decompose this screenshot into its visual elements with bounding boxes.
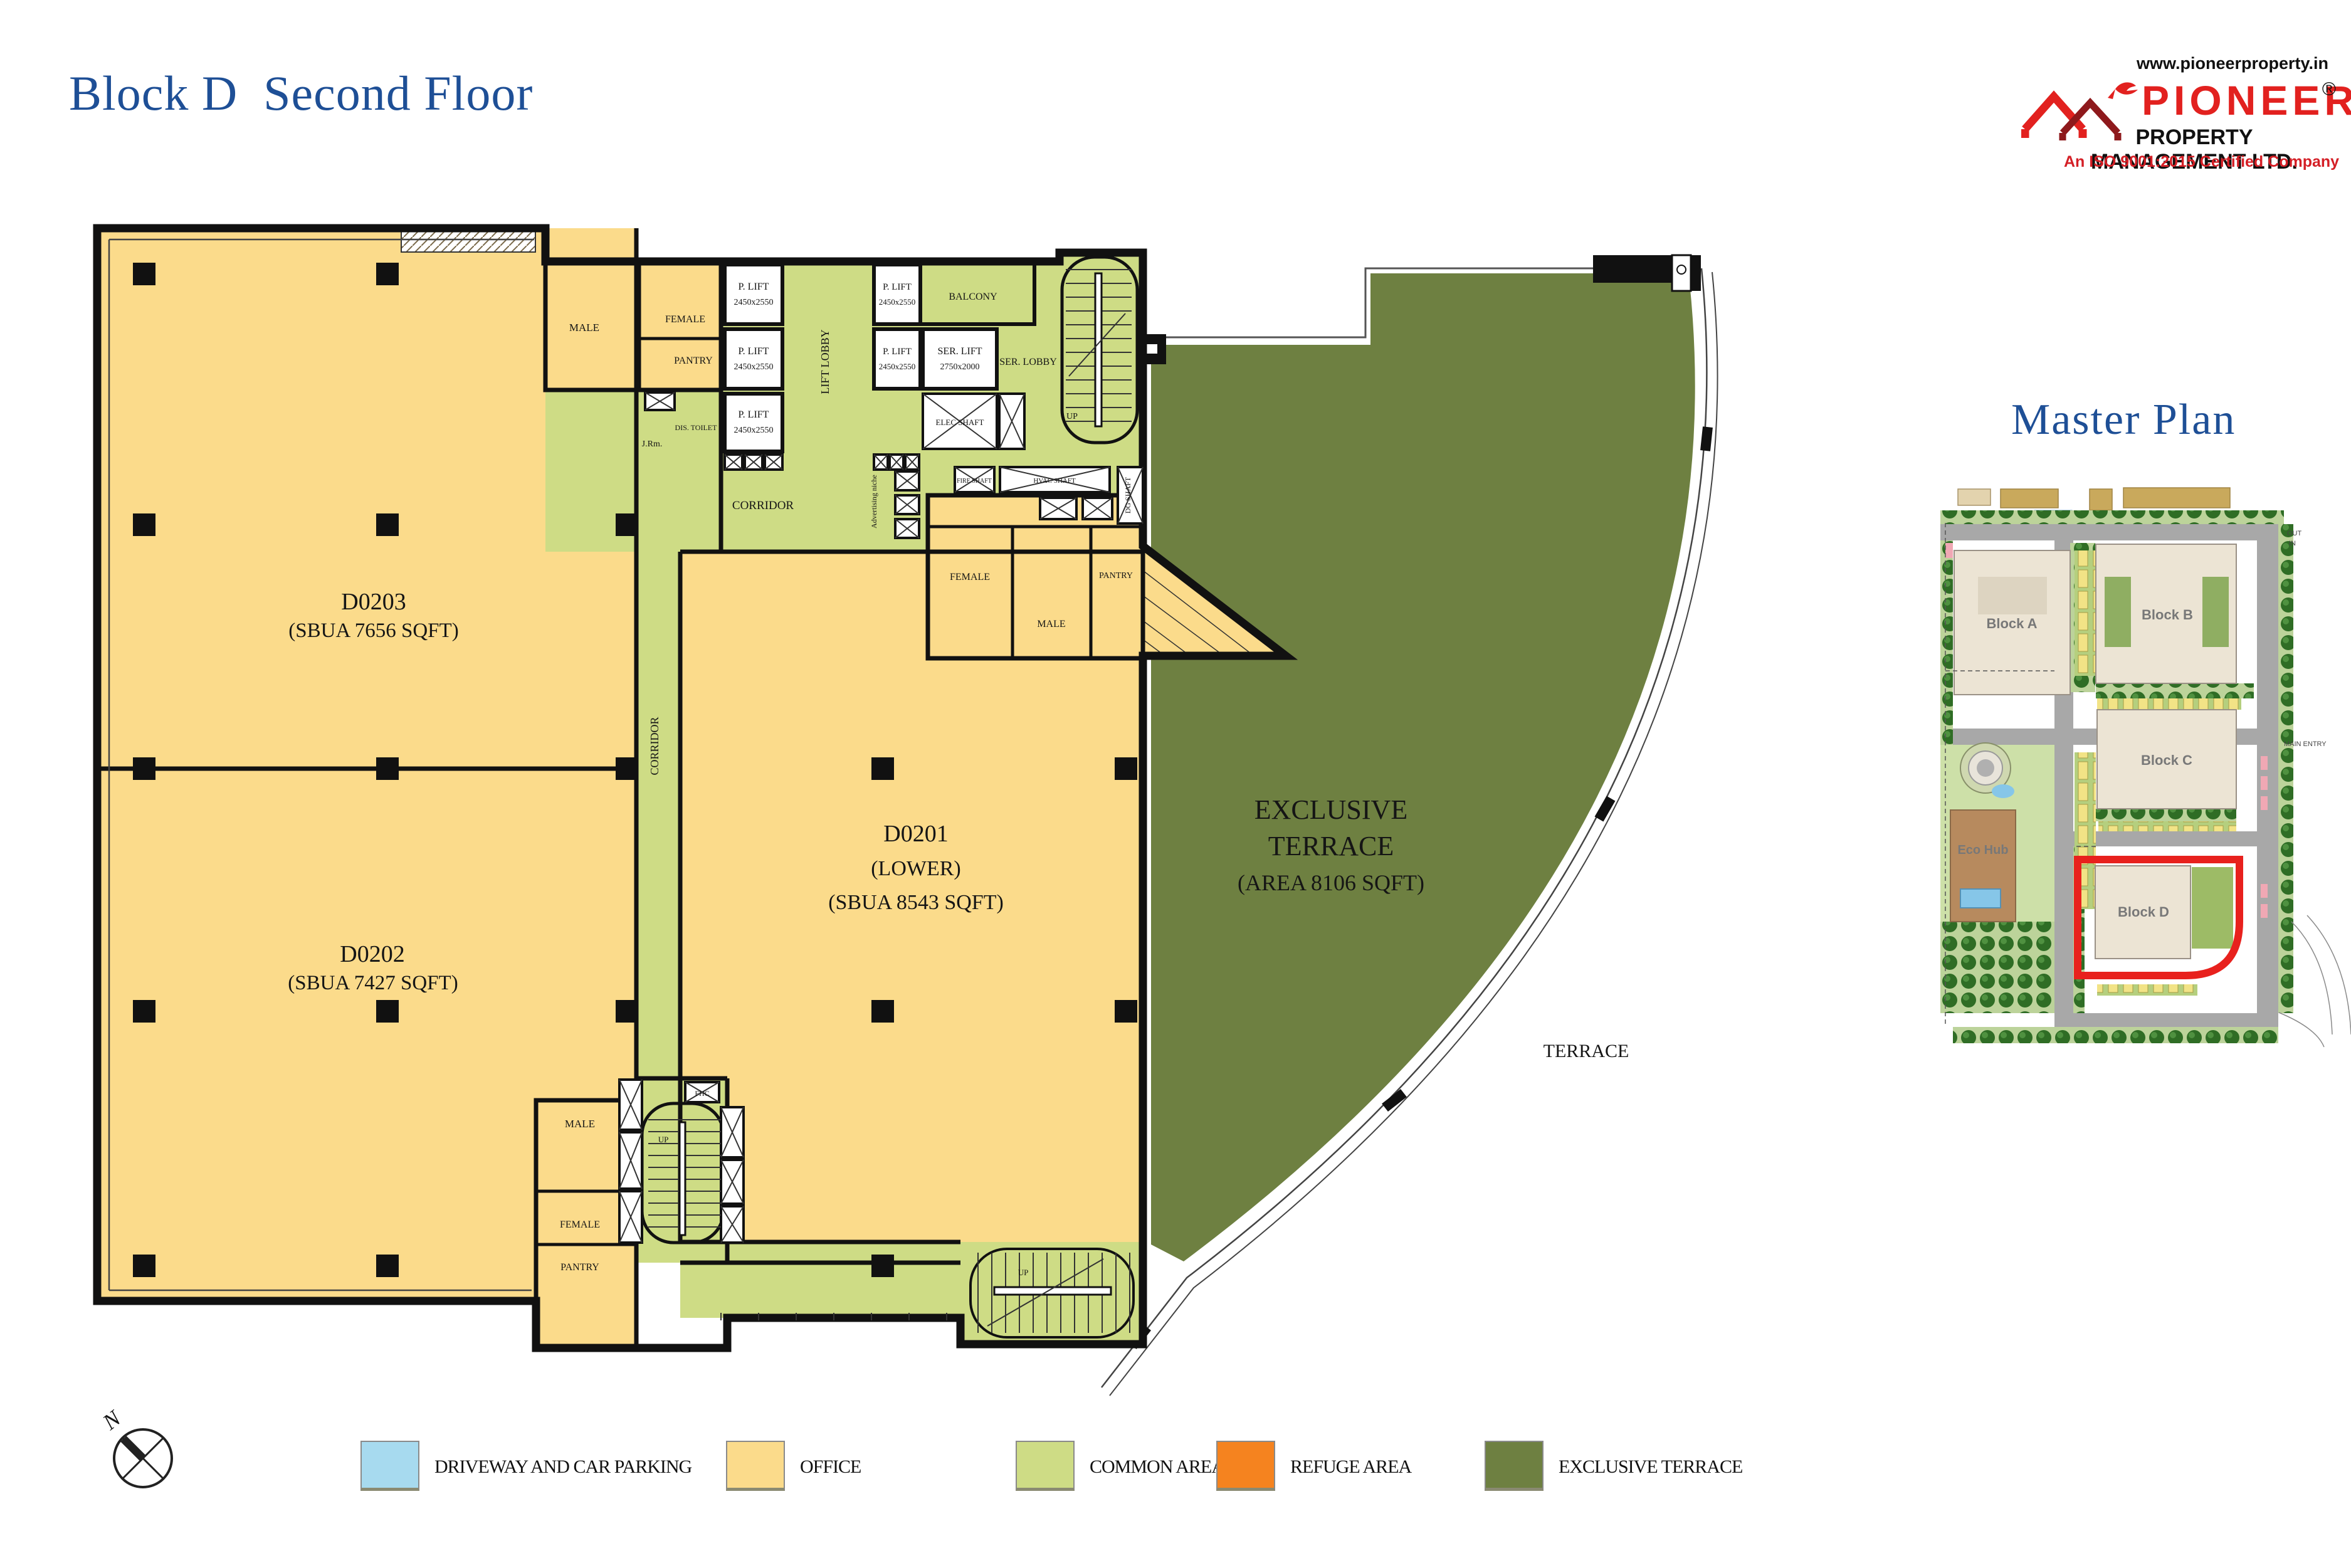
male-top-label: MALE — [569, 322, 599, 334]
compass: N — [98, 1405, 172, 1487]
p-lift-5 — [874, 329, 920, 389]
registered-mark: ® — [2322, 79, 2336, 100]
refuge-label: REFUGE AREA — [1290, 1441, 1411, 1493]
driveway-label: DRIVEWAY AND CAR PARKING — [434, 1441, 692, 1493]
mp-eco-hub-label: Eco Hub — [1957, 843, 2008, 857]
dis-toilet-label: DIS. TOILET — [675, 423, 718, 432]
corridor-h-label: CORRIDOR — [732, 499, 794, 512]
mp-main-entry-label: MAIN ENTRY — [2284, 740, 2327, 748]
p-lift-2-size: 2450x2550 — [734, 362, 774, 372]
lift-lobby-label: LIFT LOBBY — [819, 329, 831, 394]
p-lift-3-size: 2450x2550 — [734, 426, 774, 435]
unit-d0201-area: (SBUA 8543 SQFT) — [828, 891, 1004, 914]
unit-d0201-id: D0201 — [883, 821, 948, 847]
terrace-line2: TERRACE — [1268, 831, 1394, 861]
p-lift-3-label: P. LIFT — [739, 409, 769, 420]
terrace-swatch — [1485, 1441, 1544, 1491]
hvac-shaft-label: HVAC SHAFT — [1033, 477, 1076, 485]
p-lift-5-size: 2450x2550 — [879, 362, 916, 371]
ser-lift-size: 2750x2000 — [940, 362, 980, 372]
website-url: www.pioneerproperty.in — [2137, 54, 2328, 73]
upper-stair-newel — [1095, 273, 1102, 426]
mp-block-a-label: Block A — [1986, 616, 2037, 631]
mp-block-b-label: Block B — [2142, 607, 2193, 623]
ser-lift — [923, 329, 997, 389]
p-lift-3 — [725, 394, 782, 451]
unit-d0202-area: (SBUA 7427 SQFT) — [288, 972, 458, 994]
corridor-strip-bottom — [680, 1242, 960, 1318]
terrace-label: EXCLUSIVE TERRACE — [1559, 1441, 1742, 1493]
building-fills — [97, 228, 1286, 1348]
fire-shaft-label: FIRE SHAFT — [957, 478, 992, 485]
female-d0201-label: FEMALE — [950, 572, 990, 582]
corridor-v-label: CORRIDOR — [648, 717, 661, 775]
mp-block-d-label: Block D — [2118, 904, 2169, 920]
terrace-top-pier — [1672, 255, 1691, 291]
unit-d0202-id: D0202 — [340, 941, 404, 967]
balcony-label: BALCONY — [949, 292, 997, 302]
iso-tagline: An ISO 9001:2015 Certified Company — [2064, 153, 2339, 171]
terrace-top-cap — [1691, 255, 1701, 291]
company-logo: www.pioneerproperty.in PIONEER ® PROPERT… — [2021, 54, 2332, 173]
outside-terrace-label: TERRACE — [1544, 1041, 1629, 1061]
brand-name: PIONEER — [2142, 76, 2351, 124]
p-lift-1-size: 2450x2550 — [734, 298, 774, 307]
master-plan-title: Master Plan — [2011, 395, 2236, 445]
terrace-line1: EXCLUSIVE — [1254, 794, 1407, 825]
office-swatch — [726, 1441, 785, 1491]
up-bottom-stair-label: UP — [1018, 1268, 1029, 1277]
driveway-swatch — [360, 1441, 419, 1491]
up-bottom-core-label: UP — [658, 1135, 669, 1144]
up-upper-label: UP — [1066, 412, 1078, 421]
unit-d0201-lower: (LOWER) — [871, 857, 961, 880]
top-wall-hatch — [401, 231, 535, 252]
office-label: OFFICE — [800, 1441, 861, 1493]
pantry-bottom-label: PANTRY — [560, 1262, 599, 1273]
p-lift-4-size: 2450x2550 — [879, 297, 916, 307]
mp-out-label: OUT — [2287, 530, 2302, 537]
page: D0203 (SBUA 7656 SQFT) D0202 (SBUA 7427 … — [0, 0, 2351, 1568]
p-lift-4-label: P. LIFT — [883, 282, 912, 292]
p-lift-4 — [874, 265, 920, 324]
p-lift-1-label: P. LIFT — [739, 282, 769, 292]
unit-d0203-area: (SBUA 7656 SQFT) — [288, 619, 458, 642]
exclusive-terrace-zone — [1102, 255, 1718, 1396]
compass-n: N — [98, 1405, 127, 1435]
p-lift-1 — [725, 265, 782, 324]
terrace-top-wall — [1593, 255, 1672, 283]
male-d0201-label: MALE — [1037, 619, 1065, 629]
mp-block-d-lawn — [2192, 867, 2233, 949]
master-plan-map: Block A Block B Block C Eco Hub Block D … — [1940, 483, 2351, 1047]
common-label: COMMON AREA — [1090, 1441, 1224, 1493]
mp-in-label: IN — [2289, 540, 2296, 547]
p-lift-2-label: P. LIFT — [739, 346, 769, 357]
female-top-label: FEMALE — [665, 314, 705, 325]
ser-lift-label: SER. LIFT — [937, 346, 982, 357]
dg-shaft-label: DG SHAFT — [1123, 476, 1132, 513]
terrace-line3: (AREA 8106 SQFT) — [1238, 870, 1424, 895]
floor-plan: D0203 (SBUA 7656 SQFT) D0202 (SBUA 7427 … — [0, 0, 2351, 1568]
bottom-core-newel — [680, 1122, 685, 1235]
terrace-shape — [1151, 273, 1695, 1261]
page-title: Block D Second Floor — [69, 65, 533, 122]
refuge-swatch — [1216, 1441, 1275, 1491]
pantry-top-label: PANTRY — [674, 355, 713, 366]
unit-d0203-id: D0203 — [341, 589, 406, 615]
male-bottom-label: MALE — [565, 1118, 595, 1130]
p-lift-5-label: P. LIFT — [883, 347, 912, 357]
mp-eco-pool — [1960, 889, 2001, 908]
ser-lobby-label: SER. LOBBY — [999, 357, 1057, 367]
adv-niche-label: Advertising niche — [870, 475, 878, 529]
mp-block-c-label: Block C — [2141, 752, 2192, 768]
pantry-d0201-label: PANTRY — [1099, 571, 1133, 581]
fhc-label: FHC — [695, 1089, 709, 1098]
tagline-row: An ISO 9001:2015 Certified Company — [2058, 153, 2331, 171]
common-swatch — [1016, 1441, 1075, 1491]
elec-shaft-label: ELEC SHAFT — [936, 418, 984, 427]
jrm-label: J.Rm. — [642, 439, 663, 449]
female-bottom-label: FEMALE — [560, 1219, 600, 1230]
p-lift-2 — [725, 329, 782, 389]
